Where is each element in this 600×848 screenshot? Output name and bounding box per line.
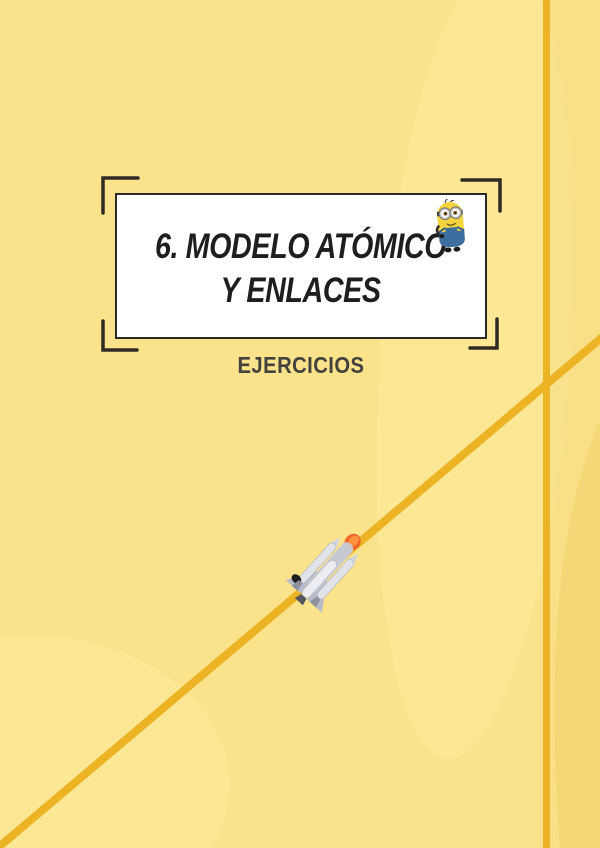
document-cover-page: 6. MODELO ATÓMICO Y ENLACES xyxy=(0,0,600,848)
minion-shoe-left xyxy=(444,247,451,252)
page-title-line2: Y ENLACES xyxy=(221,273,381,310)
page-subtitle: EJERCICIOS xyxy=(137,352,464,379)
page-title-line1: 6. MODELO ATÓMICO xyxy=(155,229,446,266)
minion-character-icon xyxy=(429,199,473,254)
minion-shoe-right xyxy=(453,246,460,251)
minion-overalls-bib xyxy=(445,227,457,235)
corner-brackets xyxy=(0,0,600,848)
